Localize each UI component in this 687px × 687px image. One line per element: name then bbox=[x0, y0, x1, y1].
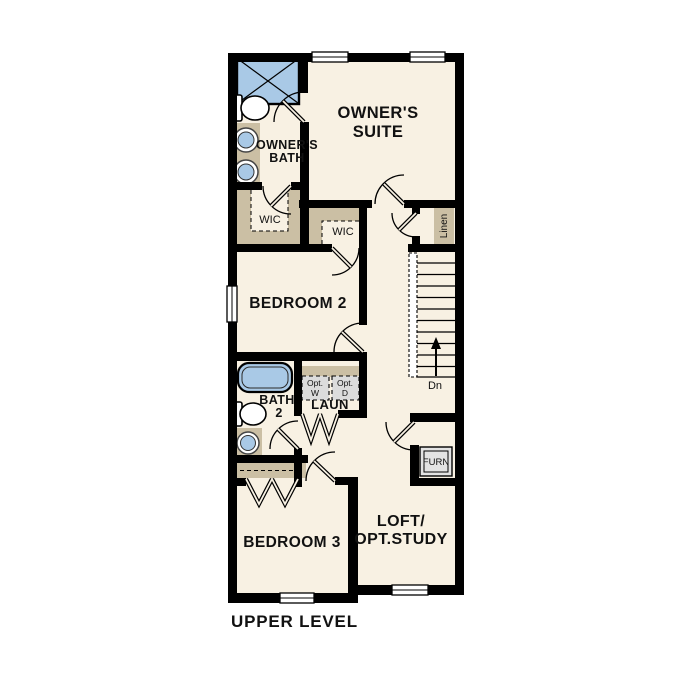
loft-label: OPT.STUDY bbox=[354, 531, 447, 548]
owners-bath-label: BATH bbox=[269, 151, 304, 165]
wall-segment bbox=[228, 352, 367, 361]
laundry-counter bbox=[300, 366, 360, 377]
floor-plan-page: OWNER'S SUITE OWNER'S BATH WIC WIC Linen… bbox=[0, 0, 687, 687]
bedroom3-label: BEDROOM 3 bbox=[243, 534, 340, 551]
furnace-label: FURN bbox=[423, 457, 450, 468]
window bbox=[410, 52, 445, 62]
bedroom2-label: BEDROOM 2 bbox=[249, 295, 346, 312]
wall-segment bbox=[359, 200, 367, 325]
window bbox=[280, 593, 314, 603]
loft-label: LOFT/ bbox=[377, 513, 425, 530]
sink-bath2 bbox=[237, 432, 259, 454]
wall-segment bbox=[408, 244, 464, 252]
opt-dryer-label: Opt. bbox=[337, 378, 353, 388]
wall-segment bbox=[228, 244, 332, 252]
wall-segment bbox=[359, 361, 367, 413]
wall-segment bbox=[228, 455, 308, 463]
wic2-label: WIC bbox=[332, 226, 353, 238]
wall-segment bbox=[228, 53, 237, 603]
stairs-down-label: Dn bbox=[428, 380, 442, 392]
owners-bath-label: OWNER'S bbox=[256, 138, 318, 152]
owners-suite-label: SUITE bbox=[353, 123, 404, 141]
window bbox=[312, 52, 348, 62]
window bbox=[392, 585, 428, 595]
wic1-label: WIC bbox=[259, 214, 280, 226]
floor-plan-drawing: OWNER'S SUITE OWNER'S BATH WIC WIC Linen… bbox=[0, 0, 687, 687]
bath2-label: 2 bbox=[275, 406, 282, 420]
wall-segment bbox=[410, 478, 464, 486]
shower bbox=[237, 58, 299, 104]
laundry-label: LAUN bbox=[311, 397, 349, 412]
wall-segment bbox=[335, 477, 358, 485]
sink-owners-2 bbox=[234, 160, 258, 184]
wall-segment bbox=[404, 200, 464, 208]
wall-segment bbox=[410, 413, 464, 422]
wall-segment bbox=[228, 182, 262, 190]
bathtub bbox=[238, 363, 292, 392]
wall-segment bbox=[299, 53, 308, 93]
opt-washer-label: Opt. bbox=[307, 378, 323, 388]
window bbox=[227, 286, 237, 322]
sink-owners-1 bbox=[234, 128, 258, 152]
page-title: UPPER LEVEL bbox=[231, 612, 358, 631]
bath2-label: BATH bbox=[259, 393, 294, 407]
stair-railing bbox=[409, 253, 417, 377]
wall-segment bbox=[455, 53, 464, 595]
wall-segment bbox=[228, 478, 246, 486]
wall-segment bbox=[294, 361, 302, 416]
wall-segment bbox=[291, 182, 304, 190]
wic2-shelving-top bbox=[309, 208, 359, 221]
linen-label: Linen bbox=[439, 214, 450, 238]
owners-suite-label: OWNER'S bbox=[338, 104, 419, 122]
